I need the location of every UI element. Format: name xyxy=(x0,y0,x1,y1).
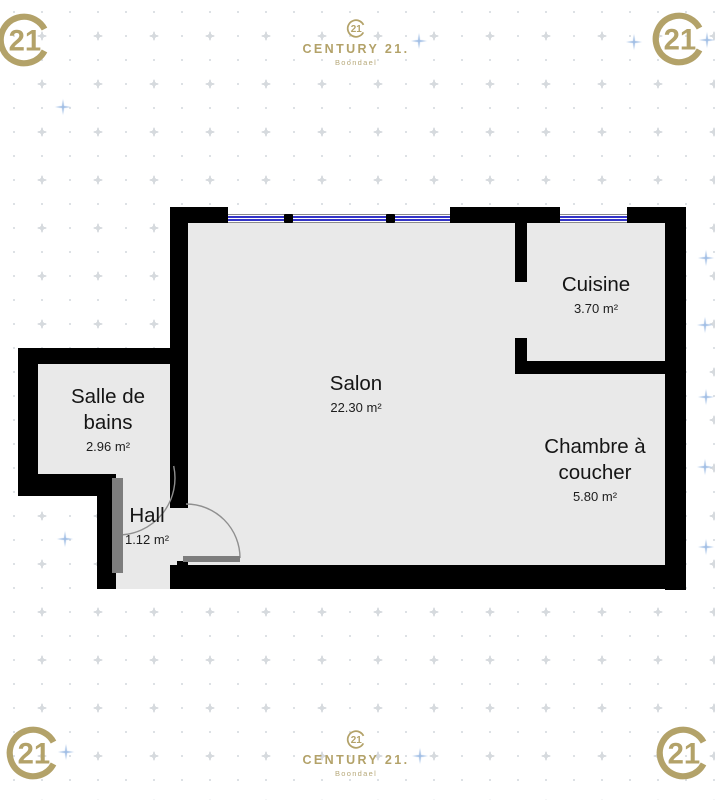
entry-door-leaf xyxy=(112,478,123,573)
sparkle-icon xyxy=(697,459,714,476)
room-label-salle-de-bains: Salle de bains 2.96 m² xyxy=(60,384,156,454)
window-mullion xyxy=(386,214,395,223)
window-mullion xyxy=(284,214,293,223)
svg-text:21: 21 xyxy=(351,24,363,35)
room-area: 1.12 m² xyxy=(125,532,169,547)
room-area: 22.30 m² xyxy=(330,400,382,415)
c21-seal-icon: 21 xyxy=(648,8,710,70)
century21-seal-logo: 21 xyxy=(0,9,55,71)
kitchen-wall-left-upper xyxy=(515,223,527,282)
century21-wordmark-bottom: 21 CENTURY 21. Boondael xyxy=(303,728,410,778)
window xyxy=(228,214,450,223)
c21-seal-icon: 21 xyxy=(0,9,55,71)
salon-door-leaf xyxy=(183,556,240,562)
room-name: Salon xyxy=(330,371,382,397)
wall-right xyxy=(665,207,686,590)
room-label-salon: Salon 22.30 m² xyxy=(330,371,382,415)
room-name: Salle de bains xyxy=(60,384,156,436)
sparkle-icon xyxy=(698,389,715,406)
room-label-cuisine: Cuisine 3.70 m² xyxy=(562,272,630,316)
svg-text:21: 21 xyxy=(351,735,363,746)
century21-seal-logo: 21 xyxy=(648,8,710,70)
room-area: 5.80 m² xyxy=(534,489,656,504)
agency-name: Boondael xyxy=(335,769,377,778)
sparkle-icon xyxy=(698,250,715,267)
century21-seal-logo: 21 xyxy=(652,722,714,784)
sparkle-icon xyxy=(412,748,429,765)
c21-small-seal-icon: 21 xyxy=(344,17,367,40)
sparkle-icon xyxy=(411,33,428,50)
door-stub xyxy=(177,561,188,573)
sparkle-icon xyxy=(697,317,714,334)
svg-text:21: 21 xyxy=(18,738,51,770)
sparkle-icon xyxy=(698,539,715,556)
brand-name: CENTURY 21. xyxy=(303,753,410,767)
c21-seal-icon: 21 xyxy=(2,722,64,784)
agency-name: Boondael xyxy=(335,58,377,67)
svg-text:21: 21 xyxy=(664,24,697,56)
room-area: 3.70 m² xyxy=(562,301,630,316)
sparkle-icon xyxy=(55,99,72,116)
bathroom-wall-top xyxy=(18,348,188,364)
wall-bottom xyxy=(170,565,686,589)
floorplan-page: 21 21 21 21 21 CENTURY 21. Boondael xyxy=(0,0,715,800)
century21-seal-logo: 21 xyxy=(2,722,64,784)
kitchen-wall-bottom xyxy=(515,361,665,374)
room-label-chambre: Chambre à coucher 5.80 m² xyxy=(534,434,656,504)
century21-wordmark-top: 21 CENTURY 21. Boondael xyxy=(303,17,410,67)
room-name: Hall xyxy=(125,503,169,529)
c21-seal-icon: 21 xyxy=(652,722,714,784)
room-area: 2.96 m² xyxy=(60,439,156,454)
c21-small-seal-icon: 21 xyxy=(344,728,367,751)
window xyxy=(560,214,627,223)
brand-name: CENTURY 21. xyxy=(303,42,410,56)
sparkle-icon xyxy=(626,34,643,51)
wall-top-mid xyxy=(450,207,560,223)
svg-text:21: 21 xyxy=(9,25,42,57)
room-name: Cuisine xyxy=(562,272,630,298)
room-label-hall: Hall 1.12 m² xyxy=(125,503,169,547)
sparkle-icon xyxy=(57,531,74,548)
svg-text:21: 21 xyxy=(668,738,701,770)
room-name: Chambre à coucher xyxy=(534,434,656,486)
